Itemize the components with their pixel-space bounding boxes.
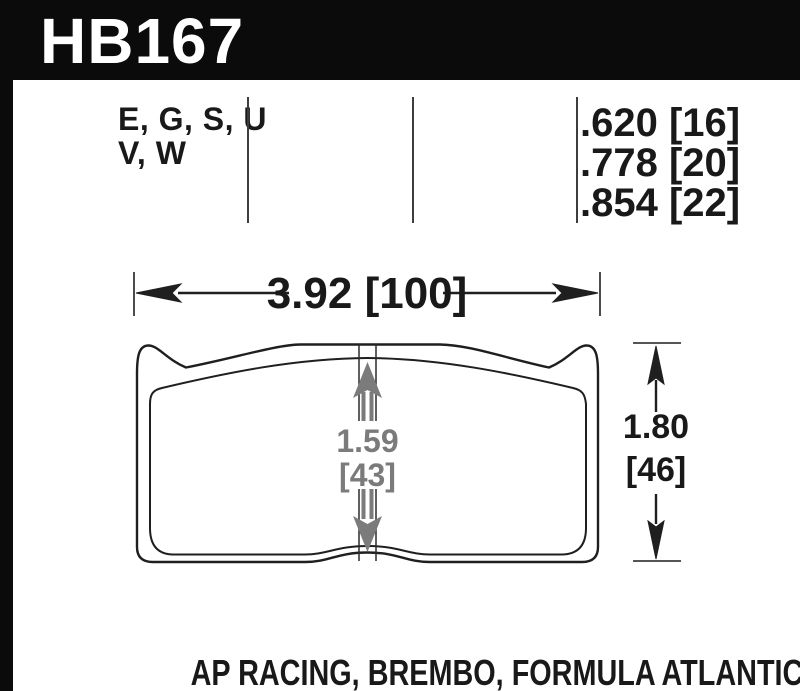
center-height-value: 1.59 (300, 424, 435, 458)
pad-thickness-list: .620 [16] .778 [20] .854 [22] (580, 103, 740, 223)
spec-sheet-page: HB167 (0, 0, 800, 691)
pad-width-label: 3.92 [100] (134, 272, 600, 316)
pad-thickness-option: .620 [16] (580, 103, 740, 143)
application-caption: AP RACING, BREMBO, FORMULA ATLANTIC (191, 653, 644, 691)
overall-height-label: 1.80 [46] (609, 406, 703, 492)
compound-codes-line2: V, W (118, 137, 267, 171)
column-divider-3 (576, 97, 578, 223)
compound-codes: E, G, S, U V, W (118, 103, 267, 170)
center-height-label: 1.59 [43] (300, 424, 435, 492)
overall-height-value: 1.80 (609, 406, 703, 449)
pad-thickness-option: .778 [20] (580, 143, 740, 183)
center-height-metric: [43] (300, 458, 435, 492)
compound-codes-line1: E, G, S, U (118, 103, 267, 137)
overall-height-metric: [46] (609, 449, 703, 492)
column-divider-1 (247, 97, 249, 223)
column-divider-2 (412, 97, 414, 223)
pad-thickness-option: .854 [22] (580, 183, 740, 223)
